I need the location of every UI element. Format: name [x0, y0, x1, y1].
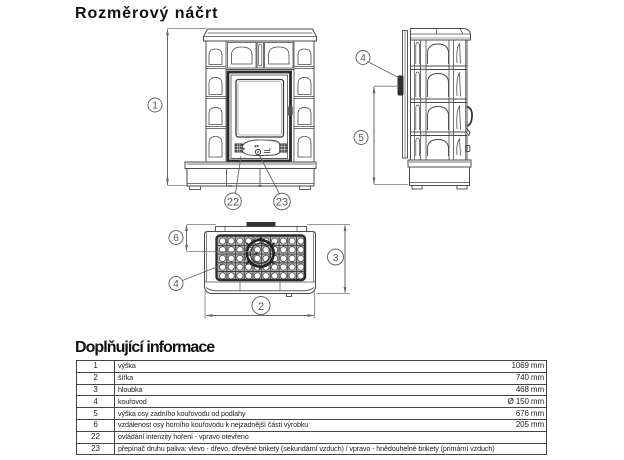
- svg-text:2: 2: [258, 301, 264, 313]
- svg-text:1: 1: [152, 101, 158, 112]
- svg-text:5: 5: [358, 133, 364, 144]
- svg-text:6: 6: [173, 233, 179, 244]
- svg-text:22: 22: [227, 196, 239, 208]
- svg-text:3: 3: [333, 252, 339, 264]
- svg-text:4: 4: [360, 53, 366, 64]
- svg-text:4: 4: [173, 279, 179, 290]
- svg-text:23: 23: [276, 197, 288, 209]
